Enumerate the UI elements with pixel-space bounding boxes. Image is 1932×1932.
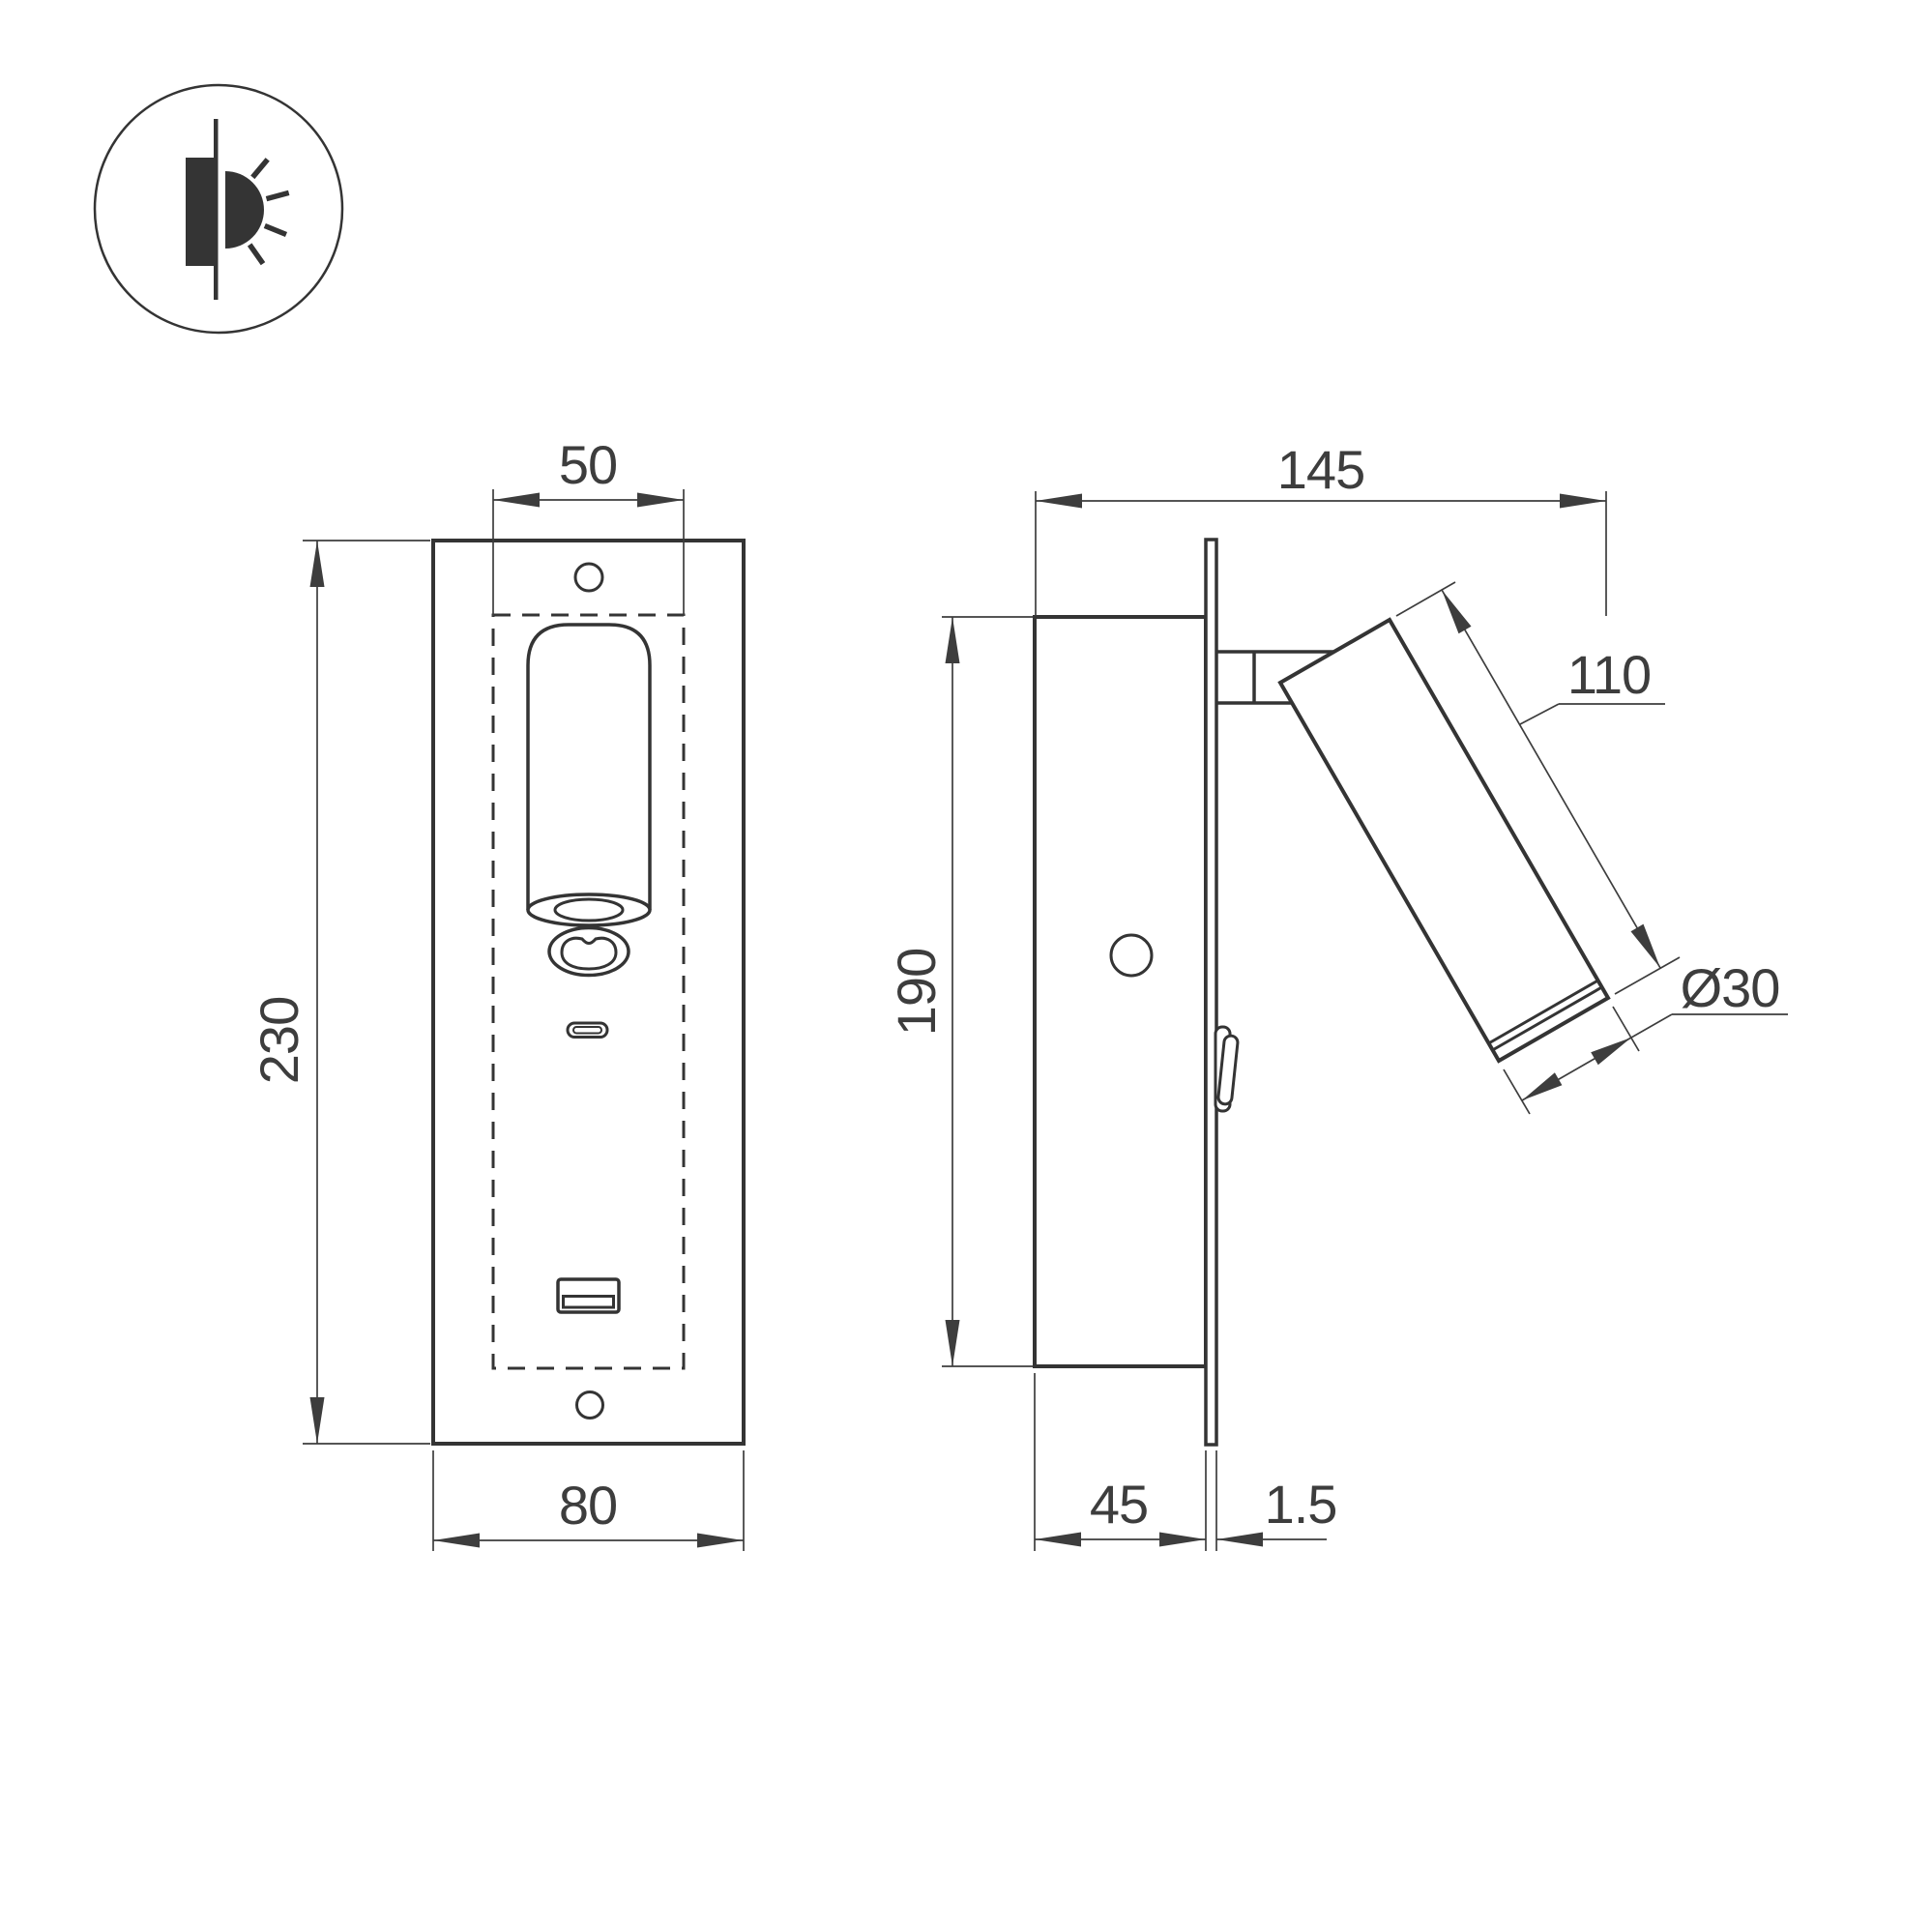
arrowhead xyxy=(1035,1533,1081,1547)
dimension-label: 1.5 xyxy=(1265,1474,1337,1535)
arrowhead xyxy=(1442,590,1472,633)
dimension-label: 45 xyxy=(1090,1474,1148,1535)
dimension-label: 190 xyxy=(886,949,947,1036)
wall-light-icon xyxy=(95,85,342,333)
side-faceplate xyxy=(1206,540,1216,1445)
side-switch xyxy=(1215,1027,1239,1111)
arrowhead xyxy=(946,617,960,663)
dimension-plate-thickness: 1.5 xyxy=(1216,1450,1336,1551)
arrowhead xyxy=(946,1320,960,1366)
extension-line xyxy=(1615,957,1680,994)
dimension-label: 110 xyxy=(1567,644,1651,705)
dimension-plate-width: 80 xyxy=(433,1450,744,1551)
technical-drawing-page: 50 230 80 145 190 xyxy=(0,0,1932,1932)
arrowhead xyxy=(493,493,540,508)
dimension-recess-height: 190 xyxy=(886,617,1033,1366)
dimension-recess-depth: 45 xyxy=(1035,1373,1206,1551)
dimension-total-depth: 145 xyxy=(1036,439,1606,616)
arrowhead xyxy=(1216,1533,1263,1547)
arrowhead xyxy=(1591,1038,1631,1065)
side-spot-body xyxy=(1280,620,1608,1061)
arrowhead xyxy=(1631,924,1661,968)
arrowhead xyxy=(310,541,325,587)
dimension-label: 145 xyxy=(1277,439,1364,500)
leader-line xyxy=(1520,704,1559,724)
front-view xyxy=(433,541,744,1444)
icon-circle xyxy=(95,85,342,333)
extension-line xyxy=(1504,1069,1530,1114)
side-recess-box xyxy=(1035,617,1206,1366)
arrowhead xyxy=(637,493,684,508)
arrowhead xyxy=(1522,1072,1562,1100)
dimension-label: 80 xyxy=(559,1475,617,1536)
arrowhead xyxy=(1560,494,1606,509)
icon-light-halfdome xyxy=(225,171,264,249)
drawing-svg: 50 230 80 145 190 xyxy=(0,0,1932,1932)
arrowhead xyxy=(310,1397,325,1444)
arrowhead xyxy=(697,1534,744,1548)
leader-line xyxy=(1631,1014,1672,1038)
dimension-label: Ø30 xyxy=(1681,957,1780,1018)
arrowhead xyxy=(1159,1533,1206,1547)
arrowhead xyxy=(1036,494,1082,509)
dimension-plate-height: 230 xyxy=(249,541,430,1444)
dimension-label: 50 xyxy=(559,434,617,495)
dimension-label: 230 xyxy=(249,997,309,1084)
icon-lamp-body xyxy=(186,158,216,266)
arrowhead xyxy=(433,1534,480,1548)
side-view xyxy=(1035,540,1608,1445)
